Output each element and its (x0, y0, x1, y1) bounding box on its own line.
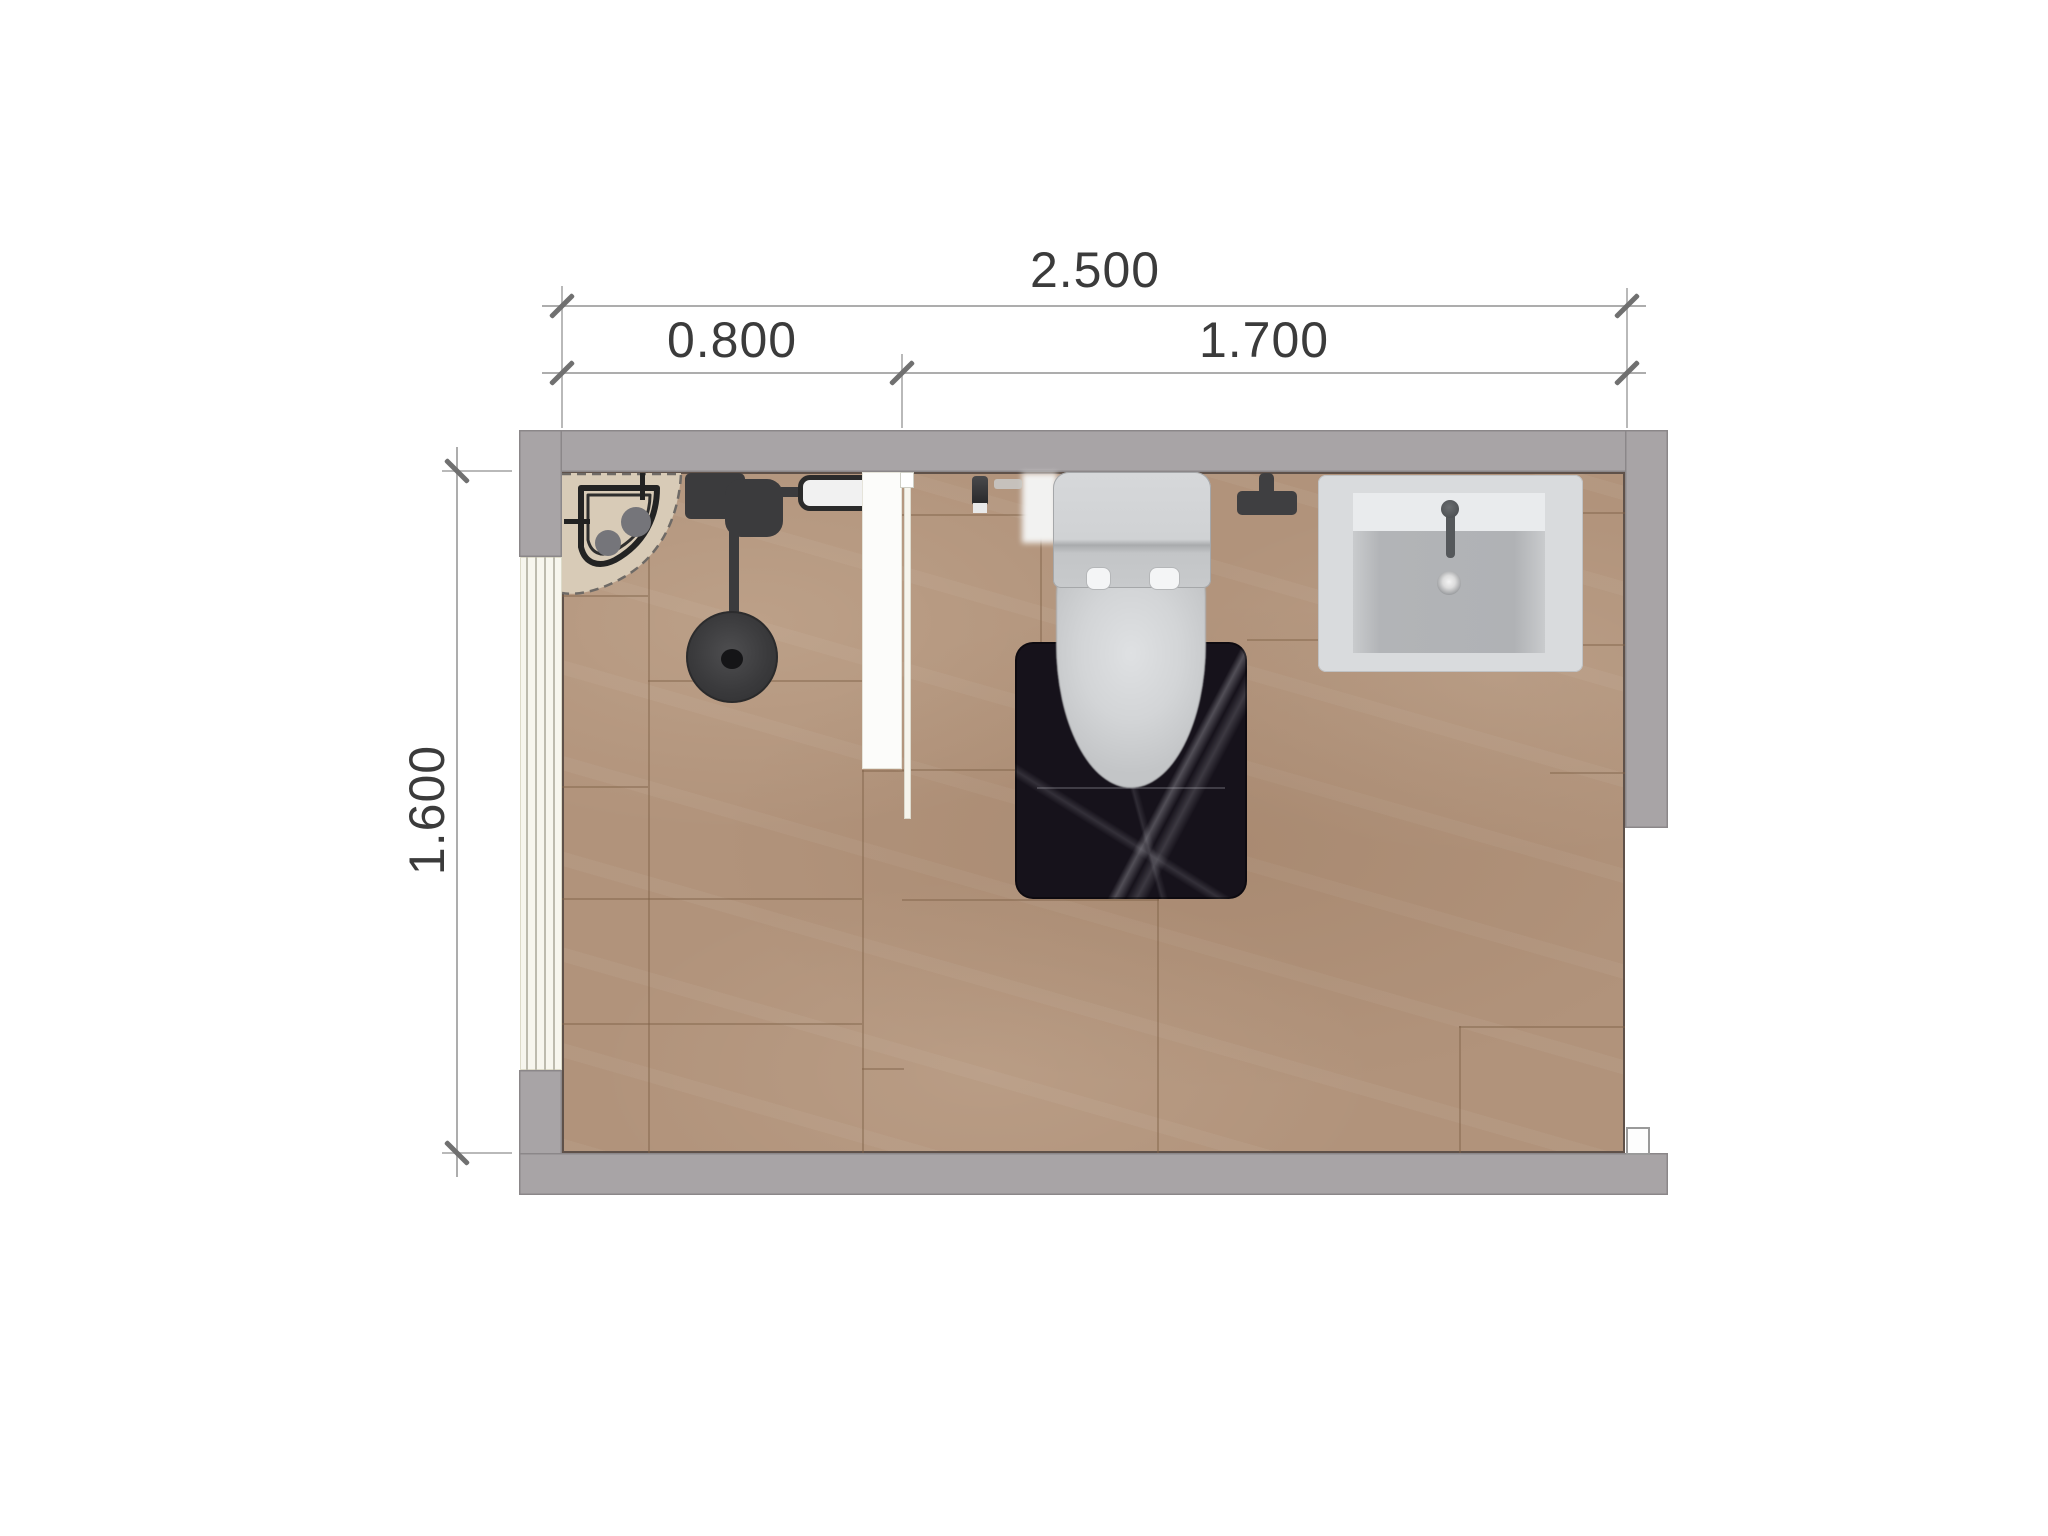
dim-line-segments (542, 372, 1646, 374)
corner-shower-tray[interactable] (562, 473, 694, 605)
paper-stand[interactable] (1237, 473, 1297, 517)
shower-mixer[interactable] (685, 471, 805, 541)
glass-clamp (900, 472, 914, 488)
grout-line (562, 1023, 862, 1025)
glass-panel (904, 472, 911, 819)
toiletry-bottle[interactable] (972, 476, 988, 506)
extension-line-middle (901, 354, 903, 428)
basin-drain (1437, 571, 1461, 595)
grout-line (1459, 1026, 1461, 1153)
basin-faucet-knob (1441, 500, 1459, 518)
drain-hole (721, 649, 743, 669)
toiletry-bottle-base (973, 503, 987, 513)
shower-pipe (729, 517, 739, 619)
tray-foot (621, 507, 651, 537)
door-leaf-line (535, 557, 537, 1070)
door-leaf-line (544, 557, 546, 1070)
wall-right (1625, 430, 1668, 828)
tray-edge-mark (564, 519, 590, 524)
grout-line (862, 1068, 904, 1070)
toilet-seat-hinge (1150, 568, 1179, 589)
dim-line-room-depth (456, 447, 458, 1177)
grout-line (902, 899, 1159, 901)
door-opening[interactable] (520, 557, 562, 1070)
grout-line (862, 770, 904, 772)
toilet-tank[interactable] (1053, 472, 1211, 588)
partition-wall (862, 472, 902, 769)
dim-label-right-segment: 1.700 (1199, 315, 1329, 365)
shower-drain[interactable] (686, 611, 778, 703)
door-leaf-line (526, 557, 528, 1070)
toiletry-tray[interactable] (994, 479, 1022, 489)
wall-left-upper (519, 430, 562, 557)
wall-top (519, 430, 1668, 472)
grout-line (1583, 644, 1625, 646)
dim-label-total-width: 2.500 (1030, 245, 1160, 295)
toilet-seat-hinge (1087, 568, 1110, 589)
dim-line-total-width (542, 305, 1646, 307)
grout-line (562, 898, 862, 900)
dim-label-room-depth: 1.600 (402, 745, 452, 875)
grout-line (902, 769, 1015, 771)
wall-bottom (519, 1153, 1668, 1195)
floor-plan-canvas: 2.500 0.800 1.700 1.600 (0, 0, 2048, 1536)
tray-foot (595, 530, 621, 556)
grout-line (862, 770, 864, 1153)
dim-label-left-segment: 0.800 (667, 315, 797, 365)
grout-line (1459, 1026, 1625, 1028)
grout-line (1157, 899, 1159, 1153)
tray-edge-mark (640, 473, 645, 500)
supply-pipe-blur (1022, 473, 1057, 543)
stand-base (1237, 491, 1297, 515)
grout-line (1583, 512, 1625, 514)
wall-notch (1626, 1127, 1650, 1155)
grout-line (562, 786, 648, 788)
grout-line (902, 514, 1040, 516)
grout-line (1550, 772, 1625, 774)
door-leaf-line (553, 557, 555, 1070)
washbasin[interactable] (1318, 475, 1583, 672)
